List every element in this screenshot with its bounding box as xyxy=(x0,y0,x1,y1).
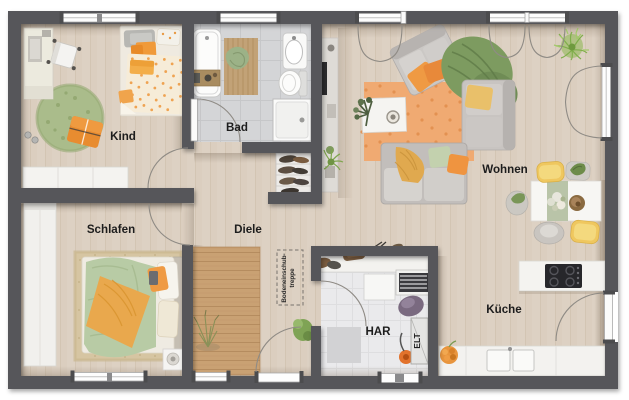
svg-text:treppe: treppe xyxy=(289,268,296,288)
svg-text:Küche: Küche xyxy=(486,303,522,316)
svg-text:HAR: HAR xyxy=(365,325,391,338)
svg-text:Bodeneinschub-: Bodeneinschub- xyxy=(281,253,288,302)
svg-text:Wohnen: Wohnen xyxy=(482,163,528,176)
svg-text:Bad: Bad xyxy=(226,121,248,134)
svg-text:ELT: ELT xyxy=(412,332,422,348)
svg-text:Schlafen: Schlafen xyxy=(87,223,135,236)
svg-text:Diele: Diele xyxy=(234,223,262,236)
svg-text:Kind: Kind xyxy=(110,130,136,143)
